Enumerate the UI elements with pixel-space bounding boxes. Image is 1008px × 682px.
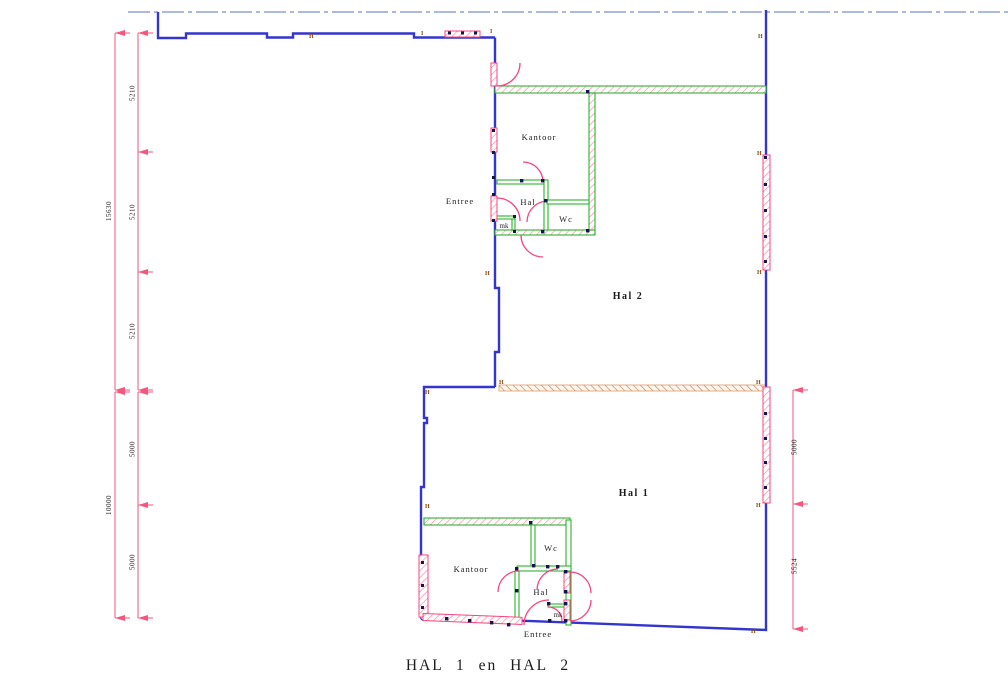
dim-5210: 5210 xyxy=(129,85,137,101)
dim-5524: 5524 xyxy=(791,558,799,574)
grid-marker: H xyxy=(309,34,314,40)
room-label-kantoor-hal2: Kantoor xyxy=(522,132,557,142)
room-label-wc-hal1: Wc xyxy=(544,543,558,553)
dimension-right-text: 5000 5524 xyxy=(791,439,799,574)
floorplan-svg: H I I H H H H H H H H H H 15630 5210 521… xyxy=(0,0,1008,682)
grid-marker: H xyxy=(757,151,762,157)
grid-marker: H xyxy=(425,504,430,510)
grid-marker: H xyxy=(485,271,490,277)
door-swings xyxy=(497,63,591,625)
grid-marker: H xyxy=(757,270,762,276)
top-wall xyxy=(158,12,495,38)
dim-total-10000: 10000 xyxy=(105,495,113,515)
grid-marker: H xyxy=(756,503,761,509)
door-arc xyxy=(570,572,591,593)
door-arc xyxy=(521,235,543,257)
room-label-mk-hal1: mk xyxy=(554,611,563,619)
grid-marker: I xyxy=(421,31,424,37)
grid-marker: H xyxy=(425,390,430,396)
partition-walls xyxy=(424,86,766,625)
dim-5000: 5000 xyxy=(129,554,137,570)
floorplan-drawing: H I I H H H H H H H H H H 15630 5210 521… xyxy=(0,0,1008,682)
dimension-left-lower-text: 10000 5000 5000 xyxy=(105,441,137,570)
door-arc xyxy=(497,63,520,86)
hall-label-hal2: Hal 2 xyxy=(613,291,644,302)
drawing-title: HAL 1 en HAL 2 xyxy=(406,657,570,674)
grid-marker: H xyxy=(756,380,761,386)
dim-total-15630: 15630 xyxy=(105,201,113,221)
room-label-wc-hal2: Wc xyxy=(559,214,573,224)
room-label-entree-hal2: Entree xyxy=(446,196,474,206)
grid-marker: H xyxy=(751,629,756,635)
separation-wall xyxy=(499,385,766,391)
dimension-left-upper-text: 15630 5210 5210 5210 xyxy=(105,85,137,339)
room-label-entree-hal1: Entree xyxy=(524,629,552,639)
grid-marker: H xyxy=(499,380,504,386)
room-label-kantoor-hal1: Kantoor xyxy=(454,564,489,574)
dim-5210: 5210 xyxy=(129,323,137,339)
grid-markers: H I I H H H H H H H H H H xyxy=(309,29,763,635)
door-arc xyxy=(570,600,591,621)
room-label-hal-hal2: Hal xyxy=(520,197,535,207)
dim-5000: 5000 xyxy=(791,439,799,455)
room-label-hal-hal1: Hal xyxy=(533,587,548,597)
grid-marker: H xyxy=(758,34,763,40)
dimension-right xyxy=(793,387,808,632)
grid-marker: I xyxy=(490,29,493,35)
building-outline xyxy=(158,10,766,630)
dim-5000: 5000 xyxy=(129,441,137,457)
dimension-left-lower xyxy=(115,389,153,621)
dim-5210: 5210 xyxy=(129,204,137,220)
hal1-top-left-wall xyxy=(421,387,495,556)
door-arc xyxy=(523,162,543,182)
room-label-mk-hal2: mk xyxy=(500,222,509,230)
hall-label-hal1: Hal 1 xyxy=(619,488,650,499)
